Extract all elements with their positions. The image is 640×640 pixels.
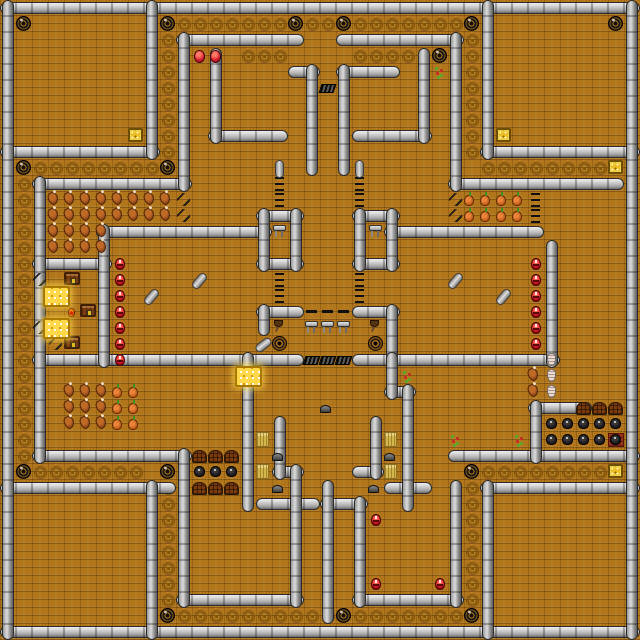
floor-swirl-decoration <box>274 610 287 623</box>
item-meat <box>62 239 76 254</box>
floor-swirl-decoration <box>274 18 287 31</box>
item-hole <box>336 16 351 31</box>
item-dashv <box>275 193 284 207</box>
item-hole <box>464 464 479 479</box>
wall-segment <box>448 178 624 190</box>
floor-swirl-decoration <box>66 162 79 175</box>
wall-segment <box>0 2 640 14</box>
item-hole <box>160 160 175 175</box>
game-map[interactable] <box>0 0 640 640</box>
item-arch[interactable] <box>192 450 207 463</box>
item-hole <box>464 608 479 623</box>
item-bird[interactable] <box>546 434 557 445</box>
item-arch[interactable] <box>224 482 239 495</box>
wall-segment <box>290 208 302 272</box>
wall-segment <box>32 178 192 190</box>
item-meat <box>526 383 540 398</box>
item-red-bug[interactable] <box>531 322 541 334</box>
floor-swirl-decoration <box>530 466 543 479</box>
item-meat <box>78 239 92 254</box>
item-veg <box>512 211 522 222</box>
floor-swirl-decoration <box>434 18 447 31</box>
item-red-bug[interactable] <box>115 290 125 302</box>
item-meat <box>526 367 540 382</box>
item-meat <box>46 223 60 238</box>
floor-swirl-decoration <box>194 18 207 31</box>
item-red-bug[interactable] <box>531 290 541 302</box>
floor-swirl-decoration <box>466 530 479 543</box>
floor-swirl-decoration <box>18 386 31 399</box>
floor-swirl-decoration <box>162 498 175 511</box>
floor-swirl-decoration <box>162 66 175 79</box>
floor-swirl-decoration <box>530 162 543 175</box>
floor-swirl-decoration <box>546 162 559 175</box>
floor-swirl-decoration <box>466 498 479 511</box>
floor-swirl-decoration <box>466 146 479 159</box>
item-grate <box>319 84 337 93</box>
floor-swirl-decoration <box>466 82 479 95</box>
item-bird[interactable] <box>594 434 605 445</box>
floor-swirl-decoration <box>34 162 47 175</box>
item-bird[interactable] <box>194 466 205 477</box>
floor-swirl-decoration <box>514 162 527 175</box>
item-hole <box>16 16 31 31</box>
item-red-bug[interactable] <box>371 514 381 526</box>
wall-segment <box>530 400 542 464</box>
floor-swirl-decoration <box>18 450 31 463</box>
item-pit <box>368 336 383 351</box>
wall-segment <box>178 448 190 608</box>
item-meat <box>62 191 76 206</box>
floor-swirl-decoration <box>386 610 399 623</box>
item-bird[interactable] <box>546 418 557 429</box>
item-dashv <box>355 193 364 207</box>
wall-segment <box>146 0 158 160</box>
floor-swirl-decoration <box>18 418 31 431</box>
item-meat <box>62 223 76 238</box>
item-dashv <box>531 209 540 223</box>
item-pit <box>272 336 287 351</box>
item-meat <box>158 207 172 222</box>
floor-swirl-decoration <box>162 594 175 607</box>
floor-swirl-decoration <box>18 242 31 255</box>
item-meat <box>78 207 92 222</box>
item-meat <box>78 415 92 430</box>
item-red-bug[interactable] <box>115 258 125 270</box>
wall-segment <box>386 208 398 272</box>
item-hole <box>464 16 479 31</box>
item-stair <box>449 209 462 222</box>
floor-swirl-decoration <box>50 162 63 175</box>
floor-swirl-decoration <box>386 18 399 31</box>
floor-swirl-decoration <box>98 466 111 479</box>
item-wood-chest[interactable] <box>64 272 80 285</box>
item-arch[interactable] <box>192 482 207 495</box>
item-veg <box>480 211 490 222</box>
item-bird[interactable] <box>610 434 621 445</box>
item-pillar-capsule <box>494 287 512 307</box>
wall-segment <box>450 32 462 192</box>
wall-segment <box>386 352 398 400</box>
item-pillar-capsule <box>142 287 160 307</box>
item-meat <box>62 207 76 222</box>
floor-swirl-decoration <box>594 466 607 479</box>
floor-swirl-decoration <box>258 610 271 623</box>
item-meat <box>94 415 108 430</box>
floor-swirl-decoration <box>562 162 575 175</box>
floor-swirl-decoration <box>162 146 175 159</box>
item-meat <box>94 207 108 222</box>
item-pillar-capsule <box>254 336 274 354</box>
item-veg <box>480 195 490 206</box>
item-bird[interactable] <box>562 418 573 429</box>
item-red-bug[interactable] <box>115 306 125 318</box>
floor-swirl-decoration <box>162 578 175 591</box>
item-bird[interactable] <box>578 418 589 429</box>
item-hole <box>288 16 303 31</box>
wall-segment <box>448 450 640 462</box>
wall-segment <box>258 208 270 272</box>
item-veg <box>112 387 122 398</box>
item-meat <box>62 415 76 430</box>
item-meat <box>126 207 140 222</box>
floor-swirl-decoration <box>162 546 175 559</box>
item-red-bug[interactable] <box>531 274 541 286</box>
item-chair[interactable] <box>368 224 382 238</box>
item-red-bug[interactable] <box>531 258 541 270</box>
item-veg <box>112 419 122 430</box>
wall-segment <box>178 32 190 192</box>
item-gold-chest[interactable] <box>496 128 511 142</box>
item-red-bug[interactable] <box>531 338 541 350</box>
item-red-bug[interactable] <box>435 578 445 590</box>
item-arch[interactable] <box>608 402 623 415</box>
item-gold-chest[interactable] <box>608 160 623 174</box>
floor-swirl-decoration <box>242 18 255 31</box>
item-hole <box>160 608 175 623</box>
item-hay <box>384 432 397 447</box>
item-chair[interactable] <box>320 320 334 334</box>
item-hay <box>384 464 397 479</box>
item-arch[interactable] <box>576 402 591 415</box>
item-dashv <box>355 177 364 191</box>
item-red-bug[interactable] <box>115 338 125 350</box>
item-arch[interactable] <box>224 450 239 463</box>
floor-swirl-decoration <box>402 50 415 63</box>
item-gold-door[interactable] <box>43 286 70 307</box>
item-veg <box>496 195 506 206</box>
item-veg <box>496 211 506 222</box>
floor-swirl-decoration <box>466 546 479 559</box>
item-dashh <box>306 310 317 313</box>
wall-segment <box>402 384 414 512</box>
wall-segment <box>450 480 462 608</box>
item-bird[interactable] <box>210 466 221 477</box>
wall-segment <box>546 240 558 368</box>
floor-swirl-decoration <box>578 466 591 479</box>
floor-swirl-decoration <box>482 466 495 479</box>
item-pillar-capsule <box>275 160 284 178</box>
floor-swirl-decoration <box>178 18 191 31</box>
floor-swirl-decoration <box>194 610 207 623</box>
item-arch[interactable] <box>208 450 223 463</box>
item-chair[interactable] <box>304 320 318 334</box>
item-veg <box>512 195 522 206</box>
item-hole <box>432 48 447 63</box>
item-bird[interactable] <box>578 434 589 445</box>
item-dashv <box>275 177 284 191</box>
floor-swirl-decoration <box>418 610 431 623</box>
item-plant <box>434 66 444 78</box>
wall-segment <box>0 626 640 638</box>
wall-segment <box>336 34 464 46</box>
item-stair <box>177 209 190 222</box>
floor-swirl-decoration <box>450 18 463 31</box>
floor-swirl-decoration <box>290 610 303 623</box>
item-gold-chest[interactable] <box>128 128 143 142</box>
wall-segment <box>32 354 304 366</box>
item-dashv <box>275 289 284 303</box>
item-bird[interactable] <box>610 418 621 429</box>
floor-swirl-decoration <box>66 466 79 479</box>
floor-swirl-decoration <box>162 34 175 47</box>
wall-segment <box>480 482 640 494</box>
floor-swirl-decoration <box>370 18 383 31</box>
item-meat <box>94 191 108 206</box>
item-chair[interactable] <box>336 320 350 334</box>
item-red-bug[interactable] <box>115 274 125 286</box>
item-gold-door[interactable] <box>235 366 262 387</box>
floor-swirl-decoration <box>114 162 127 175</box>
floor-swirl-decoration <box>18 258 31 271</box>
item-rock <box>272 485 283 493</box>
item-hole <box>160 464 175 479</box>
item-meat <box>62 399 76 414</box>
wall-segment <box>274 416 286 480</box>
floor-swirl-decoration <box>466 562 479 575</box>
item-hole <box>16 160 31 175</box>
item-gold-door[interactable] <box>43 318 70 339</box>
floor-swirl-decoration <box>18 338 31 351</box>
wall-segment <box>96 226 272 238</box>
floor-swirl-decoration <box>418 18 431 31</box>
item-axe <box>368 320 380 332</box>
item-red-bug[interactable] <box>115 322 125 334</box>
item-red-egg[interactable] <box>210 50 221 63</box>
floor-swirl-decoration <box>562 466 575 479</box>
floor-swirl-decoration <box>450 610 463 623</box>
item-veg <box>128 387 138 398</box>
item-ember <box>68 308 75 317</box>
item-hole <box>16 464 31 479</box>
item-dashv <box>531 193 540 207</box>
item-meat <box>78 383 92 398</box>
item-meat <box>94 399 108 414</box>
floor-swirl-decoration <box>226 18 239 31</box>
floor-swirl-decoration <box>466 578 479 591</box>
wall-segment <box>338 64 350 176</box>
item-plant <box>514 434 524 446</box>
wall-segment <box>352 354 560 366</box>
item-chair[interactable] <box>272 224 286 238</box>
item-meat <box>142 207 156 222</box>
item-red-bug[interactable] <box>371 578 381 590</box>
item-meat <box>78 191 92 206</box>
item-pillar-capsule <box>446 271 464 291</box>
floor-swirl-decoration <box>18 210 31 223</box>
item-meat <box>46 239 60 254</box>
item-arch[interactable] <box>592 402 607 415</box>
floor-swirl-decoration <box>130 466 143 479</box>
floor-swirl-decoration <box>242 50 255 63</box>
wall-segment <box>0 146 160 158</box>
floor-swirl-decoration <box>306 18 319 31</box>
wall-segment <box>354 496 366 608</box>
floor-swirl-decoration <box>594 162 607 175</box>
item-red-bug[interactable] <box>115 354 125 366</box>
item-rock <box>320 405 331 413</box>
item-dashh <box>322 310 333 313</box>
floor-swirl-decoration <box>466 34 479 47</box>
floor-swirl-decoration <box>434 610 447 623</box>
wall-segment <box>32 450 192 462</box>
floor-swirl-decoration <box>98 162 111 175</box>
item-hay <box>256 464 269 479</box>
floor-swirl-decoration <box>354 610 367 623</box>
item-stair <box>33 273 46 286</box>
floor-swirl-decoration <box>386 50 399 63</box>
floor-swirl-decoration <box>466 594 479 607</box>
floor-swirl-decoration <box>466 50 479 63</box>
item-veg <box>128 419 138 430</box>
floor-swirl-decoration <box>258 18 271 31</box>
item-red-bug[interactable] <box>531 306 541 318</box>
floor-swirl-decoration <box>354 50 367 63</box>
floor-swirl-decoration <box>354 18 367 31</box>
item-vase <box>547 353 556 366</box>
item-hole <box>160 16 175 31</box>
item-dashv <box>355 273 364 287</box>
floor-swirl-decoration <box>498 162 511 175</box>
floor-swirl-decoration <box>162 130 175 143</box>
floor-swirl-decoration <box>370 610 383 623</box>
floor-swirl-decoration <box>18 290 31 303</box>
item-plant <box>402 370 412 382</box>
item-vase <box>547 385 556 398</box>
item-hole <box>336 608 351 623</box>
floor-swirl-decoration <box>162 530 175 543</box>
floor-swirl-decoration <box>162 98 175 111</box>
wall-segment <box>626 0 638 640</box>
floor-swirl-decoration <box>466 114 479 127</box>
floor-swirl-decoration <box>466 66 479 79</box>
item-hay <box>256 432 269 447</box>
wall-segment <box>306 64 318 176</box>
floor-swirl-decoration <box>466 482 479 495</box>
floor-swirl-decoration <box>546 466 559 479</box>
wall-segment <box>256 498 320 510</box>
item-pillar-capsule <box>190 271 208 291</box>
item-arch[interactable] <box>208 482 223 495</box>
item-meat <box>158 191 172 206</box>
floor-swirl-decoration <box>18 226 31 239</box>
wall-segment <box>482 480 494 640</box>
floor-swirl-decoration <box>402 610 415 623</box>
item-meat <box>78 223 92 238</box>
item-meat <box>62 383 76 398</box>
item-veg <box>464 195 474 206</box>
floor-swirl-decoration <box>322 18 335 31</box>
floor-swirl-decoration <box>162 50 175 63</box>
item-veg <box>128 403 138 414</box>
item-pillar-capsule <box>355 160 364 178</box>
floor-swirl-decoration <box>18 274 31 287</box>
item-axe <box>272 320 284 332</box>
floor-swirl-decoration <box>146 162 159 175</box>
floor-swirl-decoration <box>162 114 175 127</box>
floor-swirl-decoration <box>162 562 175 575</box>
floor-swirl-decoration <box>50 466 63 479</box>
wall-segment <box>176 34 304 46</box>
item-rock <box>272 453 283 461</box>
floor-swirl-decoration <box>514 466 527 479</box>
floor-swirl-decoration <box>18 178 31 191</box>
floor-swirl-decoration <box>370 50 383 63</box>
item-meat <box>46 191 60 206</box>
wall-segment <box>290 464 302 608</box>
floor-swirl-decoration <box>578 162 591 175</box>
floor-swirl-decoration <box>242 610 255 623</box>
floor-swirl-decoration <box>130 162 143 175</box>
item-vase <box>547 369 556 382</box>
wall-segment <box>480 146 640 158</box>
floor-swirl-decoration <box>402 18 415 31</box>
floor-swirl-decoration <box>482 162 495 175</box>
floor-swirl-decoration <box>306 610 319 623</box>
item-wood-chest[interactable] <box>80 304 96 317</box>
item-plant <box>450 434 460 446</box>
floor-swirl-decoration <box>210 610 223 623</box>
floor-swirl-decoration <box>210 18 223 31</box>
floor-swirl-decoration <box>18 402 31 415</box>
item-bird[interactable] <box>562 434 573 445</box>
wall-segment <box>482 0 494 160</box>
item-dashv <box>355 289 364 303</box>
floor-swirl-decoration <box>178 610 191 623</box>
item-dashh <box>338 310 349 313</box>
item-meat <box>142 191 156 206</box>
item-meat <box>46 207 60 222</box>
wall-segment <box>176 594 304 606</box>
item-bird[interactable] <box>226 466 237 477</box>
item-stair <box>449 193 462 206</box>
item-red-egg[interactable] <box>194 50 205 63</box>
wall-segment <box>384 226 544 238</box>
floor-swirl-decoration <box>226 610 239 623</box>
item-veg <box>464 211 474 222</box>
floor-swirl-decoration <box>34 466 47 479</box>
floor-swirl-decoration <box>258 50 271 63</box>
item-bird[interactable] <box>594 418 605 429</box>
item-rock <box>368 485 379 493</box>
floor-swirl-decoration <box>466 130 479 143</box>
item-veg <box>112 403 122 414</box>
floor-swirl-decoration <box>18 354 31 367</box>
wall-segment <box>418 48 430 144</box>
item-meat <box>110 207 124 222</box>
floor-swirl-decoration <box>498 466 511 479</box>
item-gold-chest[interactable] <box>608 464 623 478</box>
